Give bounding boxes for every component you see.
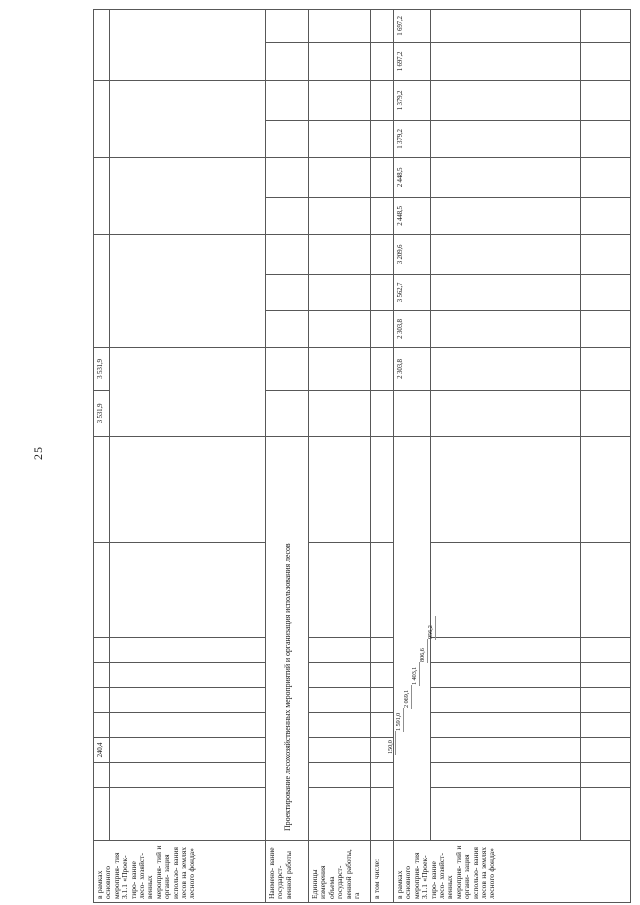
value-cell: 1 379,2 [394,80,431,120]
stair-value: 150,0 [387,731,396,755]
empty-cell [110,9,266,80]
empty-cell [266,42,309,80]
empty-cell [266,391,309,437]
empty-cell [581,311,631,348]
empty-cell [309,348,371,391]
section-header-label: в рамках основного мероприя- тия 3.1.1 «… [394,841,631,903]
empty-cell [309,9,371,42]
empty-cell [110,348,266,437]
stair-value: 1 591,0 [395,708,404,732]
work-name-value: Проектирование лесохозяйственных меропри… [266,437,309,841]
empty-cell [581,9,631,42]
work-name-label: Наимено- вание государст- венной работы [266,841,309,903]
table-row [431,9,581,902]
empty-cell [371,391,394,437]
empty-cell [110,80,266,157]
value-cell: 1 697,2 [394,42,431,80]
empty-cell [110,763,266,788]
value-cell: 2 303,8 [394,311,431,348]
empty-cell [94,763,110,788]
empty-cell [94,543,110,638]
empty-cell [309,663,371,688]
stair-line: 2 069,1 [403,455,411,709]
empty-cell [266,234,309,274]
empty-cell [394,391,431,437]
empty-cell [94,713,110,738]
empty-cell [94,688,110,713]
empty-cell [371,42,394,80]
empty-cell [371,763,394,788]
empty-cell [309,763,371,788]
empty-cell [431,788,581,841]
empty-cell [110,688,266,713]
empty-cell [266,311,309,348]
empty-cell [581,348,631,391]
empty-cell [94,9,110,80]
section-header-label: в рамках основного мероприя- тия 3.1.1 «… [94,841,266,903]
including-label: в том числе: [371,841,394,903]
table-row: в рамках основного мероприя- тия 3.1.1 «… [94,9,110,902]
empty-cell [581,80,631,120]
page-number: 25 [31,433,46,473]
document-table: в рамках основного мероприя- тия 3.1.1 «… [93,9,631,903]
empty-cell [431,638,581,663]
empty-cell [309,120,371,157]
empty-cell [581,688,631,713]
empty-cell [431,311,581,348]
empty-cell [110,437,266,543]
empty-cell [431,663,581,688]
empty-cell [431,713,581,738]
stair-value: 956,2 [427,616,436,640]
empty-cell [371,788,394,841]
table-row [110,9,266,902]
value-cell: 1 379,2 [394,120,431,157]
empty-cell [94,788,110,841]
empty-cell [581,738,631,763]
empty-cell [431,738,581,763]
value-cell: 3 209,6 [394,234,431,274]
empty-cell [110,738,266,763]
empty-cell [371,120,394,157]
empty-cell [309,197,371,234]
stair-line: 150,0 [387,455,395,755]
empty-cell [309,738,371,763]
empty-cell [94,234,110,347]
empty-cell [94,638,110,663]
value-cell: 2 303,8 [394,348,431,391]
empty-cell [431,42,581,80]
empty-cell [581,234,631,274]
empty-cell [371,234,394,274]
value-cell: 1 697,2 [394,9,431,42]
rotated-table-layer: 25 в рамках основного мероприя- тия 3.1.… [25,7,640,903]
empty-cell [309,80,371,120]
empty-cell [309,638,371,663]
empty-cell [431,157,581,197]
empty-cell [581,197,631,234]
empty-cell [431,275,581,311]
value-cell: 3 531,9 [94,348,110,391]
empty-cell [309,157,371,197]
stair-line: 806,6 [419,455,427,663]
value-cell: 2 448,5 [394,197,431,234]
empty-cell [581,275,631,311]
empty-cell [431,437,581,543]
empty-cell [581,120,631,157]
empty-cell [371,311,394,348]
empty-cell [581,391,631,437]
units-label: Единицы измерения объема государст- венн… [309,841,371,903]
value-cell: 3 531,9 [94,391,110,437]
stair-value: 1 403,1 [411,662,420,686]
empty-cell [371,80,394,120]
table-row-units: Единицы измерения объема государст- венн… [309,9,371,902]
empty-cell [431,120,581,157]
empty-cell [581,543,631,638]
empty-cell [110,663,266,688]
empty-cell [431,543,581,638]
empty-cell [431,197,581,234]
empty-cell [431,80,581,120]
empty-cell [266,197,309,234]
empty-cell [371,275,394,311]
empty-cell [266,157,309,197]
empty-cell [431,9,581,42]
empty-cell [431,763,581,788]
empty-cell [110,638,266,663]
empty-cell [110,157,266,234]
empty-cell [266,348,309,391]
empty-cell [309,543,371,638]
empty-cell [309,311,371,348]
empty-cell [266,9,309,42]
empty-cell [309,234,371,274]
empty-cell [431,348,581,391]
empty-cell [581,437,631,543]
empty-cell [94,663,110,688]
empty-cell [431,234,581,274]
empty-cell [309,688,371,713]
empty-cell [94,157,110,234]
stair-line: 956,2 [427,455,435,640]
value-cell: 240,4 [94,738,110,763]
empty-cell [581,713,631,738]
staircase-values: 150,0 1 591,0 2 069,1 1 403,1 806,6 956,… [387,455,435,755]
empty-cell [309,42,371,80]
empty-cell [266,120,309,157]
empty-cell [309,391,371,437]
empty-cell [309,713,371,738]
empty-cell [371,9,394,42]
empty-cell [266,80,309,120]
empty-cell [94,437,110,543]
scanned-document-page: 25 в рамках основного мероприя- тия 3.1.… [0,0,640,905]
stair-line: 1 591,0 [395,455,403,732]
empty-cell [581,788,631,841]
empty-cell [266,275,309,311]
table-row [581,9,631,902]
empty-cell [309,788,371,841]
table-row-work-name: Наимено- вание государст- венной работы … [266,9,309,902]
empty-cell [371,348,394,391]
empty-cell [371,197,394,234]
empty-cell [431,688,581,713]
empty-cell [581,663,631,688]
empty-cell [110,234,266,347]
empty-cell [309,437,371,543]
value-cell: 3 562,7 [394,275,431,311]
empty-cell [94,80,110,157]
empty-cell [110,788,266,841]
stair-line: 1 403,1 [411,455,419,686]
stair-value: 806,6 [419,639,428,663]
empty-cell [431,391,581,437]
stair-value: 2 069,1 [403,685,412,709]
empty-cell [309,275,371,311]
empty-cell [581,157,631,197]
empty-cell [581,763,631,788]
empty-cell [371,157,394,197]
empty-cell [110,543,266,638]
value-cell: 2 448,5 [394,157,431,197]
empty-cell [110,713,266,738]
empty-cell [581,638,631,663]
empty-cell [581,42,631,80]
